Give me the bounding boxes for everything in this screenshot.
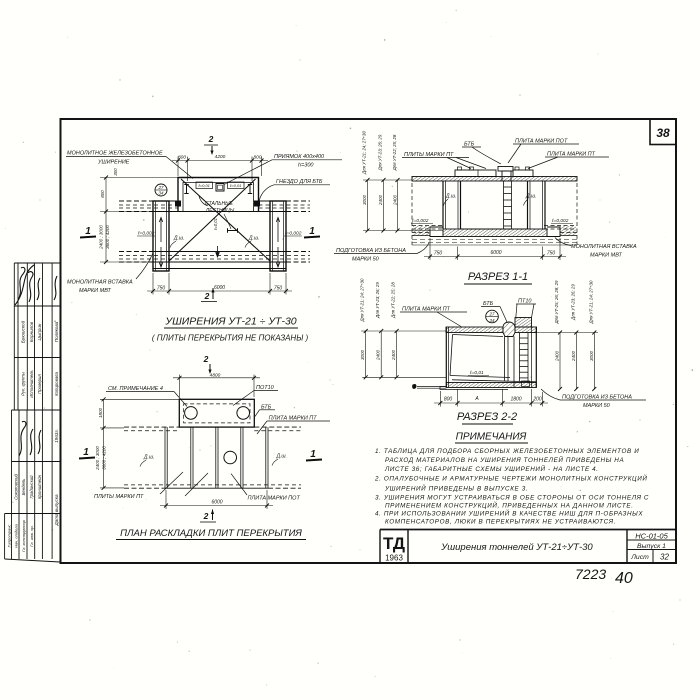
svg-text:38: 38	[656, 126, 670, 140]
svg-text:МОНОЛИТНАЯ ВСТАВКА: МОНОЛИТНАЯ ВСТАВКА	[571, 244, 637, 250]
svg-text:НС-01-05: НС-01-05	[635, 532, 668, 541]
svg-text:2400: 2400	[393, 194, 398, 206]
svg-text:4200: 4200	[215, 154, 226, 160]
svg-text:СТАЛЬНЫЕ: СТАЛЬНЫЕ	[205, 201, 233, 207]
svg-text:Бендель: Бендель	[21, 478, 26, 496]
svg-text:ПЛИТА МАРКИ ПТ: ПЛИТА МАРКИ ПТ	[402, 307, 451, 313]
svg-text:Корнилов: Корнилов	[29, 321, 34, 342]
svg-text:Брюшской: Брюшской	[20, 320, 26, 343]
svg-text:1: 1	[83, 447, 89, 458]
svg-text:3000: 3000	[360, 349, 365, 360]
svg-text:1. ТАБЛИЦА ДЛЯ ПОДБОРА СБОРНЫХ: 1. ТАБЛИЦА ДЛЯ ПОДБОРА СБОРНЫХ ЖЕЛЕЗОБЕТ…	[375, 448, 639, 455]
svg-text:800: 800	[100, 190, 105, 198]
svg-text:750: 750	[157, 286, 166, 292]
svg-text:ПОТ10: ПОТ10	[256, 385, 275, 391]
svg-text:ПЛИТА МАРКИ ПТ: ПЛИТА МАРКИ ПТ	[547, 152, 596, 158]
svg-text:УШИРЕНИЯ УТ-21 ÷ УТ-30: УШИРЕНИЯ УТ-21 ÷ УТ-30	[164, 316, 296, 328]
svg-text:Д.ш.: Д.ш.	[248, 236, 259, 242]
svg-text:Гипротранс: Гипротранс	[6, 525, 11, 548]
svg-text:2400: 2400	[571, 350, 576, 362]
svg-text:3600 ; 4200: 3600 ; 4200	[105, 225, 110, 249]
svg-text:750: 750	[434, 251, 443, 257]
svg-text:32: 32	[660, 553, 669, 562]
svg-text:УШИРЕНИЙ ПРИВЕДЕНЫ В ВЫПУСКЕ 3: УШИРЕНИЙ ПРИВЕДЕНЫ В ВЫПУСКЕ 3.	[384, 484, 528, 493]
svg-text:750: 750	[274, 286, 283, 292]
svg-text:Дата выпуска: Дата выпуска	[54, 494, 59, 526]
svg-text:РАЗРЕЗ 2-2: РАЗРЕЗ 2-2	[457, 411, 517, 423]
svg-text:Для УТ-21; 24; 27÷30: Для УТ-21; 24; 27÷30	[360, 278, 365, 322]
svg-text:Д.ш.: Д.ш.	[445, 194, 456, 200]
svg-text:2: 2	[208, 134, 214, 144]
svg-text:Для УТ-22; 25; 28: Для УТ-22; 25; 28	[391, 282, 396, 319]
svg-text:ℓ=0,002: ℓ=0,002	[551, 218, 569, 224]
svg-text:ЛИСТЕ 36; ГАБАРИТНЫЕ СХЕМЫ УШИ: ЛИСТЕ 36; ГАБАРИТНЫЕ СХЕМЫ УШИРЕНИЙ - НА…	[384, 464, 599, 473]
svg-text:Исполнитель: Исполнитель	[29, 369, 34, 397]
svg-text:1: 1	[310, 449, 316, 460]
svg-text:2400: 2400	[376, 349, 381, 361]
svg-text:200: 200	[532, 397, 542, 403]
svg-text:Рук. группы: Рук. группы	[21, 371, 26, 396]
svg-text:ПЛИТЫ МАРКИ ПТ: ПЛИТЫ МАРКИ ПТ	[404, 152, 454, 158]
svg-text:ПРИМЕНЕНИЕМ КОНСТРУКЦИЙ, ПРИВЕ: ПРИМЕНЕНИЕМ КОНСТРУКЦИЙ, ПРИВЕДЕННЫХ НА …	[385, 501, 634, 510]
svg-text:34: 34	[489, 318, 495, 323]
svg-text:Гл. инж. пр.: Гл. инж. пр.	[29, 525, 34, 546]
svg-text:1800: 1800	[98, 407, 103, 418]
svg-text:2: 2	[204, 291, 210, 301]
svg-text:МАРКИ МВТ: МАРКИ МВТ	[79, 288, 112, 294]
svg-text:МОНОЛИТНАЯ ВСТАВКА: МОНОЛИТНАЯ ВСТАВКА	[67, 280, 133, 286]
svg-text:2400 ; 3000: 2400 ; 3000	[99, 225, 104, 250]
svg-text:БТБ: БТБ	[464, 142, 475, 148]
svg-text:27: 27	[157, 185, 164, 190]
svg-text:3000: 3000	[362, 194, 367, 205]
svg-text:ПЛИТЫ МАРКИ ПТ: ПЛИТЫ МАРКИ ПТ	[94, 494, 144, 500]
svg-text:Нач. отдела: Нач. отдела	[13, 524, 18, 548]
svg-text:РАСХОД МАТЕРИАЛОВ НА УШИРЕНИЯ: РАСХОД МАТЕРИАЛОВ НА УШИРЕНИЯ ТОННЕЛЕЙ П…	[385, 455, 624, 464]
svg-text:300: 300	[113, 168, 118, 176]
svg-text:Лист: Лист	[630, 554, 649, 561]
svg-text:ПРИЯМОК 400х400: ПРИЯМОК 400х400	[274, 154, 325, 160]
svg-text:Гл. конструктор: Гл. конструктор	[21, 519, 26, 552]
svg-text:( ПЛИТЫ ПЕРЕКРЫТИЯ НЕ ПОКАЗ: ( ПЛИТЫ ПЕРЕКРЫТИЯ НЕ ПОКАЗАНЫ )	[152, 334, 309, 343]
svg-text:А: А	[474, 396, 479, 402]
svg-text:Для УТ-22; 25; 28: Для УТ-22; 25; 28	[392, 134, 397, 171]
svg-text:750: 750	[547, 251, 556, 257]
svg-text:Уширения тоннелей УТ-21÷УТ-3: Уширения тоннелей УТ-21÷УТ-30	[440, 542, 593, 553]
svg-text:Полякова: Полякова	[54, 321, 59, 342]
svg-text:Для УТ-25; 26; 28; 29: Для УТ-25; 26; 28; 29	[554, 280, 559, 324]
svg-text:4. ПРИ ИСПОЛЬЗОВАНИИ УШИРЕНИЙ: 4. ПРИ ИСПОЛЬЗОВАНИИ УШИРЕНИЙ В КАЧЕСТВЕ…	[375, 509, 643, 518]
svg-text:1: 1	[85, 226, 91, 237]
svg-text:МОНОЛИТНОЕ ЖЕЛЕЗОБЕТОННОЕ: МОНОЛИТНОЕ ЖЕЛЕЗОБЕТОННОЕ	[67, 151, 163, 157]
svg-text:ПЛИТА МАРКИ ПОТ: ПЛИТА МАРКИ ПОТ	[248, 496, 301, 502]
svg-text:ПТ10: ПТ10	[518, 299, 532, 305]
svg-text:Для УТ-23; 26; 29: Для УТ-23; 26; 29	[378, 134, 383, 171]
svg-text:1800: 1800	[510, 397, 521, 403]
svg-text:ПОДГОТОВКА ИЗ БЕТОНА: ПОДГОТОВКА ИЗ БЕТОНА	[336, 248, 406, 254]
svg-text:7223: 7223	[575, 566, 606, 582]
svg-text:800: 800	[253, 155, 261, 161]
svg-text:2: 2	[203, 511, 209, 521]
svg-text:Для УТ-21; 24; 27÷30: Для УТ-21; 24; 27÷30	[588, 280, 593, 324]
svg-text:6000: 6000	[214, 285, 225, 291]
svg-text:6000: 6000	[490, 250, 501, 256]
svg-text:Кронштейн: Кронштейн	[37, 474, 42, 499]
svg-text:Д.ш.: Д.ш.	[525, 194, 536, 200]
svg-text:ℓ=0,01: ℓ=0,01	[229, 183, 241, 188]
svg-text:34: 34	[158, 191, 164, 196]
svg-text:3. УШИРЕНИЯ МОГУТ УСТРАИВАТЬСЯ: 3. УШИРЕНИЯ МОГУТ УСТРАИВАТЬСЯ В ОБЕ СТО…	[375, 495, 649, 502]
svg-text:800: 800	[444, 397, 453, 403]
svg-text:ЛЕСТНИЦЫ: ЛЕСТНИЦЫ	[205, 208, 235, 214]
svg-text:2400: 2400	[378, 194, 383, 206]
svg-text:Проверил: Проверил	[37, 374, 42, 394]
svg-text:БТБ: БТБ	[483, 301, 494, 307]
svg-text:ПОДГОТОВКА ИЗ БЕТОНА: ПОДГОТОВКА ИЗ БЕТОНА	[562, 395, 632, 401]
svg-text:КОМПЕНСАТОРОВ, ЛЮКИ В ПЕРЕКРЫТ: КОМПЕНСАТОРОВ, ЛЮКИ В ПЕРЕКРЫТИЯХ НЕ УСТ…	[385, 519, 616, 526]
svg-text:ПЛИТА МАРКИ ПОТ: ПЛИТА МАРКИ ПОТ	[515, 139, 568, 145]
svg-text:1: 1	[309, 226, 315, 237]
svg-text:6000: 6000	[211, 500, 222, 506]
svg-text:РАЗРЕЗ 1-1: РАЗРЕЗ 1-1	[468, 271, 528, 283]
svg-text:МАРКИ 50: МАРКИ 50	[352, 257, 380, 263]
svg-text:ТД: ТД	[383, 534, 405, 553]
svg-text:ℓ=0,01: ℓ=0,01	[213, 218, 218, 231]
svg-text:Выпуск 1: Выпуск 1	[637, 543, 666, 550]
svg-text:800: 800	[178, 155, 186, 161]
svg-text:Градинский: Градинский	[29, 475, 34, 499]
svg-text:ГНЕЗДО ДЛЯ БТБ: ГНЕЗДО ДЛЯ БТБ	[276, 179, 323, 185]
svg-text:3600 ; 4200: 3600 ; 4200	[101, 446, 106, 470]
svg-text:Цыприн: Цыприн	[37, 323, 42, 340]
svg-text:Копировала: Копировала	[54, 372, 59, 396]
svg-text:2400: 2400	[555, 350, 560, 362]
svg-text:Соколовский: Соколовский	[13, 474, 18, 500]
svg-text:Для УТ-23; 26; 29: Для УТ-23; 26; 29	[375, 282, 380, 319]
svg-text:40: 40	[615, 570, 633, 587]
svg-text:2400: 2400	[391, 349, 396, 361]
svg-text:h=300: h=300	[298, 163, 314, 169]
svg-text:МАРКИ МВТ: МАРКИ МВТ	[590, 253, 623, 259]
svg-text:27: 27	[488, 312, 495, 317]
svg-text:1963г.: 1963г.	[54, 429, 59, 443]
svg-text:2: 2	[203, 354, 209, 364]
svg-text:ПЛИТА МАРКИ ПТ: ПЛИТА МАРКИ ПТ	[269, 416, 318, 422]
svg-text:Д.ш.: Д.ш.	[143, 455, 154, 461]
svg-text:УШИРЕНИЕ: УШИРЕНИЕ	[97, 160, 130, 166]
svg-text:ПРИМЕЧАНИЯ: ПРИМЕЧАНИЯ	[456, 432, 527, 443]
svg-text:Д.ш.: Д.ш.	[276, 454, 287, 460]
svg-text:Для УТ-23; 26; 29: Для УТ-23; 26; 29	[570, 284, 575, 321]
svg-text:ℓ=0,002: ℓ=0,002	[137, 231, 155, 237]
svg-text:2. ОПАЛУБОЧНЫЕ И АРМАТУРНЫЕ ЧЕ: 2. ОПАЛУБОЧНЫЕ И АРМАТУРНЫЕ ЧЕРТЕЖИ МОНО…	[374, 474, 647, 483]
svg-text:2400 ; 3000: 2400 ; 3000	[95, 446, 100, 471]
svg-text:СМ. ПРИМЕЧАНИЕ 4: СМ. ПРИМЕЧАНИЕ 4	[108, 386, 163, 392]
svg-text:4800: 4800	[210, 373, 221, 379]
svg-text:Для УТ-21; 24; 27÷30: Для УТ-21; 24; 27÷30	[362, 130, 367, 174]
svg-text:ℓ=0,002: ℓ=0,002	[284, 231, 302, 237]
svg-text:ℓ=0,01: ℓ=0,01	[197, 183, 209, 188]
svg-text:3000: 3000	[589, 350, 594, 361]
svg-text:ПЛАН РАСКЛАДКИ ПЛИТ ПЕРЕКРЫ: ПЛАН РАСКЛАДКИ ПЛИТ ПЕРЕКРЫТИЯ	[120, 528, 302, 539]
svg-text:МАРКИ 50: МАРКИ 50	[583, 403, 611, 409]
svg-text:1963: 1963	[385, 554, 403, 563]
svg-text:ℓ=0,01: ℓ=0,01	[469, 370, 484, 376]
svg-text:ℓ=0,002: ℓ=0,002	[411, 218, 429, 224]
svg-text:Д.ш.: Д.ш.	[173, 236, 184, 242]
